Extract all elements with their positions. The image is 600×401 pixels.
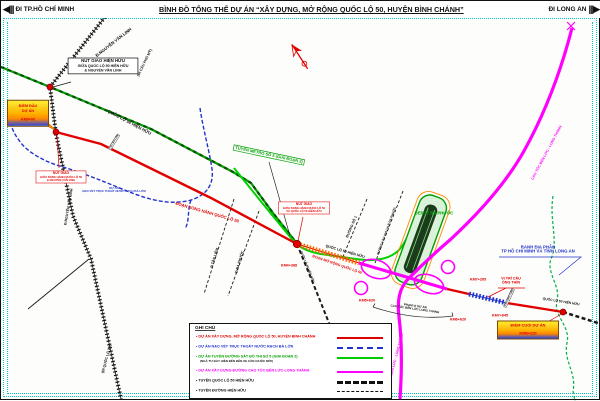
legend-item-label: • DỰ ÁN XÂY DỰNG, MỞ RỘNG QUỐC LỘ 50, HU…: [196, 335, 315, 339]
map-title: BÌNH ĐỒ TỔNG THỂ DỰ ÁN “XÂY DỰNG, MỞ RỘN…: [74, 5, 548, 14]
start-point-km: KM0+00: [16, 118, 41, 123]
label-boundary-line2: TP HỒ CHÍ MINH VÀ TỈNH LONG AN: [501, 250, 574, 255]
callout-junction-ql50-line3: VÀ QUỐC LỘ 50 HIỆN HỮU: [280, 210, 328, 213]
km-marker-bridge-end: KM7+645: [492, 314, 508, 318]
north-arrow-icon: [288, 42, 312, 72]
destination-left: ĐI TP.HỒ CHÍ MINH: [15, 6, 74, 13]
legend-magenta-line-sample: [337, 371, 383, 373]
legend-title: GHI CHÚ: [195, 326, 215, 331]
legend-item: • TUYẾN ĐƯỜNG HIỆN HỮU: [196, 388, 385, 396]
km-marker-expwy-start: KM5+620: [359, 299, 375, 303]
legend-green-line-sample: [337, 357, 383, 359]
legend-item-label: • DỰ ÁN NẠO VÉT TRỤC THOÁT NƯỚC RẠCH BÀ …: [196, 345, 293, 349]
west-arrow-icon: ◀|||: [1, 5, 15, 14]
callout-junction-nvl-line3: & NGUYỄN VĂN LINH: [37, 179, 84, 182]
legend-black-thick-dashed-sample: [337, 381, 383, 384]
callout-end-point: ĐIỂM CUỐI DỰ ÁN KM8+220: [497, 321, 559, 340]
legend-black-thin-dashed-sample: [337, 391, 383, 392]
line-ong-thin-bridge: [469, 294, 507, 303]
destination-right: ĐI LONG AN: [548, 6, 586, 13]
end-point-title: ĐIỂM CUỐI DỰ ÁN: [508, 324, 548, 329]
road-ql50-east: [563, 312, 600, 324]
label-dredging-line2: NẠO VÉT TRỤC THOÁT NƯỚC RẠCH BÀ LỚN: [82, 190, 145, 193]
callout-junction-nvl: NÚT GIAO GIỮA SONG HÀNH QUỐC LỘ 50 & NGU…: [36, 171, 87, 184]
legend-blue-dashed-sample: [337, 347, 383, 349]
legend-item: • TUYẾN QUỐC LỘ 50 HIỆN HỮU: [196, 378, 385, 386]
label-depot-da-phuoc: DEPOT ĐA PHƯỚC: [415, 212, 454, 216]
legend: GHI CHÚ • DỰ ÁN XÂY DỰNG, MỞ RỘNG QUỐC L…: [189, 323, 392, 399]
km-marker-expwy-end: KM6+620: [450, 318, 466, 322]
callout-existing-junction: NÚT GIAO HIỆN HỮU GIỮA QUỐC LỘ 50 HIỆN H…: [68, 58, 139, 75]
line-project-east-2: [507, 303, 563, 312]
km-marker-bridge-start: KM7+265: [470, 278, 486, 282]
label-bridge-line2: ÔNG THÌN: [501, 281, 521, 285]
km-marker-junction: KM4+368: [281, 264, 297, 268]
legend-item-label: • DỰ ÁN TUYẾN ĐƯỜNG SẮT ĐÔ THỊ SỐ 5 (GIA…: [196, 355, 298, 359]
line-project-east-1: [447, 289, 469, 294]
end-point-km: KM8+220: [508, 331, 548, 336]
label-province-boundary: RANH ĐỊA PHẬN TP HỒ CHÍ MINH VÀ TỈNH LON…: [501, 245, 574, 254]
road-branch: [28, 259, 89, 309]
callout-existing-junction-line3: & NGUYỄN VĂN LINH: [70, 69, 136, 73]
legend-item-subnote: (NGÃ TƯ BẢY HIỀN ĐẾN BẾN XE CẦN GIUỘC MỚ…: [196, 360, 385, 368]
legend-item-label: • DỰ ÁN XÂY DỰNG ĐƯỜNG CAO TỐC BẾN LỨC-L…: [196, 369, 309, 373]
legend-item-label: • TUYẾN ĐƯỜNG HIỆN HỮU: [196, 389, 246, 393]
start-point-title: ĐIỂM ĐẦU DỰ ÁN: [16, 105, 41, 114]
east-arrow-icon: |||▶: [587, 5, 600, 14]
depot-da-phuoc: [388, 188, 453, 292]
callout-start-point: ĐIỂM ĐẦU DỰ ÁN KM0+00: [7, 100, 49, 127]
legend-item-label: • TUYẾN QUỐC LỘ 50 HIỆN HỮU: [196, 379, 254, 383]
title-bar: ◀||| ĐI TP.HỒ CHÍ MINH BÌNH ĐỒ TỔNG THỂ …: [1, 1, 600, 18]
legend-item-sublabel: (NGÃ TƯ BẢY HIỀN ĐẾN BẾN XE CẦN GIUỘC MỚ…: [200, 360, 273, 363]
legend-red-line-sample: [337, 337, 383, 339]
callout-junction-ql50: NÚT GIAO GIỮA SONG HÀNH QUỐC LỘ 50 VÀ QU…: [278, 202, 330, 215]
label-ong-thin-bridge: VỊ TRÍ CẦU ÔNG THÌN: [501, 277, 521, 285]
legend-item: • DỰ ÁN XÂY DỰNG, MỞ RỘNG QUỐC LỘ 50, HU…: [196, 334, 385, 342]
legend-item: • DỰ ÁN NẠO VÉT TRỤC THOÁT NƯỚC RẠCH BÀ …: [196, 344, 385, 352]
legend-item: • DỰ ÁN XÂY DỰNG ĐƯỜNG CAO TỐC BẾN LỨC-L…: [196, 368, 385, 376]
label-dredging-project: DỰ ÁN NẠO VÉT TRỤC THOÁT NƯỚC RẠCH BÀ LỚ…: [82, 187, 145, 193]
